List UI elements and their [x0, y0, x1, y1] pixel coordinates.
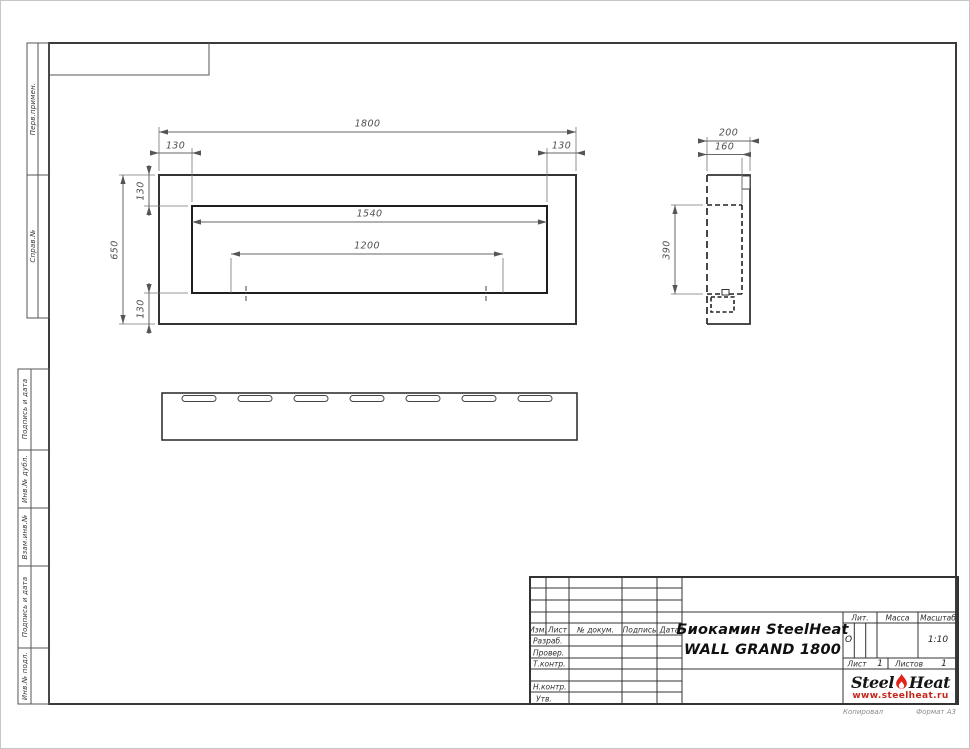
dim-depth: 200	[719, 127, 738, 138]
col-header-list: Лист	[548, 625, 567, 634]
row-label-tkontr: Т.контр.	[533, 660, 566, 669]
burner-box-hidden	[711, 297, 734, 312]
igniter-notch	[722, 290, 729, 296]
dim-left-offset: 130	[166, 140, 185, 151]
dim-bottom-offset: 130	[136, 299, 147, 318]
dimension-lines	[675, 141, 759, 294]
margin-label-perv-primen: Перв.примен.	[29, 83, 37, 136]
lit-value: О	[845, 635, 852, 645]
margin-label-inv-podl: Инв.№ подл.	[21, 652, 29, 700]
sheets-label: Листов	[895, 659, 923, 668]
scale-value: 1:10	[928, 635, 948, 645]
bottom-view	[162, 393, 577, 440]
margin-label-podpis-data-1: Подпись и дата	[21, 379, 29, 440]
dim-firebox-height: 390	[661, 240, 672, 259]
side-view	[671, 137, 759, 324]
margin-label-podpis-data-2: Подпись и дата	[21, 577, 29, 638]
dim-overall-width: 1800	[355, 119, 381, 130]
dim-overall-height: 650	[109, 240, 120, 259]
front-view	[119, 127, 585, 334]
firebox-hidden-outline	[707, 205, 742, 294]
steelheat-logo: Steel Heat www.steelheat.ru	[844, 670, 957, 703]
dim-inner-depth: 160	[715, 141, 734, 152]
logo-word-steel: Steel	[851, 673, 894, 692]
extension-lines	[671, 137, 750, 294]
row-label-utv: Утв.	[536, 694, 552, 703]
sheets-total: 1	[941, 659, 947, 669]
dim-opening-width: 1540	[357, 209, 383, 220]
logo-word-heat: Heat	[909, 673, 950, 692]
row-label-prover: Провер.	[533, 648, 564, 657]
row-label-razrab: Разраб.	[533, 637, 562, 646]
margin-label-vzam-inv: Взам.инв.№	[21, 514, 29, 559]
dimension-arrows	[672, 138, 759, 294]
dim-right-offset: 130	[552, 140, 571, 151]
col-header-izm: Изм.	[529, 625, 547, 634]
doc-title-line2: WALL GRAND 1800	[684, 642, 841, 658]
dim-burner-span: 1200	[354, 241, 380, 252]
col-header-doc: № докум.	[577, 625, 614, 634]
margin-label-sprav-no: Справ.№	[29, 229, 37, 262]
copied-label: Копировал	[843, 708, 883, 716]
doc-title-line1: Биокамин SteelHeat	[676, 622, 848, 638]
vent-slots	[182, 396, 552, 402]
logo-site-url: www.steelheat.ru	[852, 691, 948, 701]
dim-top-offset: 130	[136, 181, 147, 200]
row-label-nkontr: Н.контр.	[533, 683, 567, 692]
flame-icon	[895, 674, 908, 691]
sheet-number: 1	[877, 659, 883, 669]
mounting-bracket	[742, 176, 750, 189]
lit-label: Лит.	[851, 613, 868, 622]
scale-label: Масштаб	[920, 613, 956, 622]
format-label: Формат А3	[916, 708, 956, 716]
sheet-label: Лист	[847, 659, 866, 668]
col-header-sign: Подпись	[623, 625, 657, 634]
mass-label: Масса	[886, 613, 910, 622]
drawing-sheet: 1800 130 130 130 650 130 1540 1200 200 1…	[0, 0, 970, 749]
dimension-arrows	[120, 129, 585, 333]
margin-label-inv-dubl: Инв.№ дубл.	[21, 455, 29, 503]
extension-lines	[119, 127, 576, 324]
